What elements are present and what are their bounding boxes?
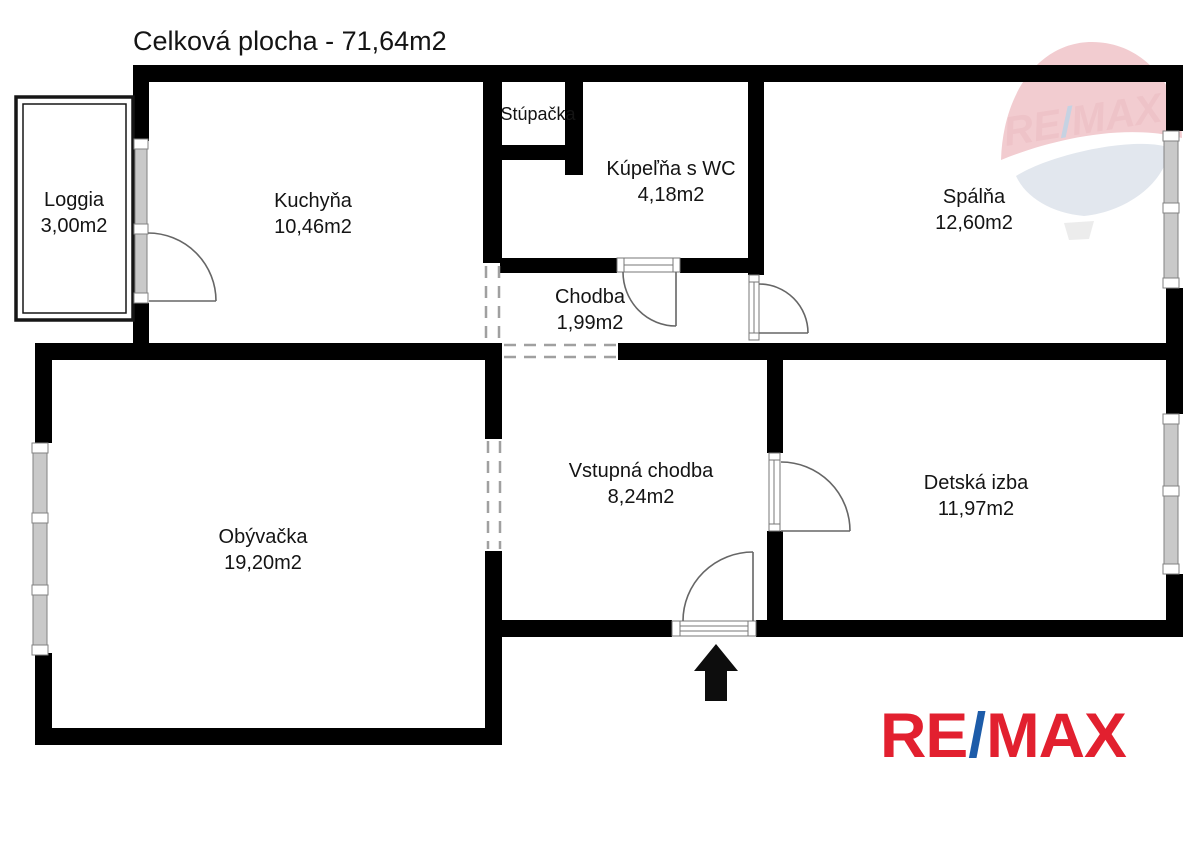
room-name: Stúpačka — [500, 101, 575, 127]
entrance-arrow-icon — [694, 644, 738, 701]
room-label-chodba: Chodba 1,99m2 — [555, 284, 625, 336]
room-label-loggia: Loggia 3,00m2 — [41, 187, 108, 239]
room-label-stupacka: Stúpačka — [500, 101, 575, 127]
balcony-door-swing — [148, 233, 216, 301]
room-name: Kuchyňa — [274, 188, 352, 214]
door-thresholds — [617, 258, 780, 636]
room-label-vstupna: Vstupná chodba 8,24m2 — [569, 458, 714, 510]
room-area: 1,99m2 — [555, 310, 625, 336]
room-label-kuchyna: Kuchyňa 10,46m2 — [274, 188, 352, 240]
room-area: 4,18m2 — [606, 182, 735, 208]
balcony-door-window — [134, 139, 148, 303]
room-name: Loggia — [41, 187, 108, 213]
entrance-door-swing — [683, 552, 753, 621]
bedroom-door-swing — [759, 284, 808, 333]
room-area: 3,00m2 — [41, 213, 108, 239]
bedroom-window — [1163, 131, 1179, 288]
balloon-fan — [1016, 144, 1170, 216]
bathroom-door-swing — [623, 272, 676, 326]
remax-logo-re: RE — [880, 701, 967, 771]
floor-plan-page: RE/MAX — [0, 0, 1200, 849]
room-area: 8,24m2 — [569, 484, 714, 510]
room-name: Vstupná chodba — [569, 458, 714, 484]
bedroom-door-threshold — [749, 275, 759, 340]
balloon-basket — [1064, 221, 1094, 240]
room-area: 11,97m2 — [924, 496, 1029, 522]
room-label-kupelna: Kúpeľňa s WC 4,18m2 — [606, 156, 735, 208]
remax-logo: RE/MAX — [880, 700, 1126, 772]
room-area: 10,46m2 — [274, 214, 352, 240]
entrance-door-threshold — [672, 621, 756, 636]
childrens-room-window — [1163, 414, 1179, 574]
room-label-detska: Detská izba 11,97m2 — [924, 470, 1029, 522]
room-area: 19,20m2 — [219, 550, 308, 576]
room-name: Chodba — [555, 284, 625, 310]
living-room-window — [32, 443, 48, 655]
childrens-room-door-swing — [781, 462, 850, 531]
room-name: Spálňa — [935, 184, 1013, 210]
room-name: Detská izba — [924, 470, 1029, 496]
page-title: Celková plocha - 71,64m2 — [133, 26, 447, 57]
childrens-room-door-threshold — [769, 453, 780, 531]
room-label-spalna: Spálňa 12,60m2 — [935, 184, 1013, 236]
room-area: 12,60m2 — [935, 210, 1013, 236]
remax-logo-max: MAX — [986, 701, 1126, 771]
room-label-obyvacka: Obývačka 19,20m2 — [219, 524, 308, 576]
room-name: Kúpeľňa s WC — [606, 156, 735, 182]
bathroom-door-threshold — [617, 258, 680, 272]
room-name: Obývačka — [219, 524, 308, 550]
remax-logo-slash: / — [967, 701, 986, 771]
